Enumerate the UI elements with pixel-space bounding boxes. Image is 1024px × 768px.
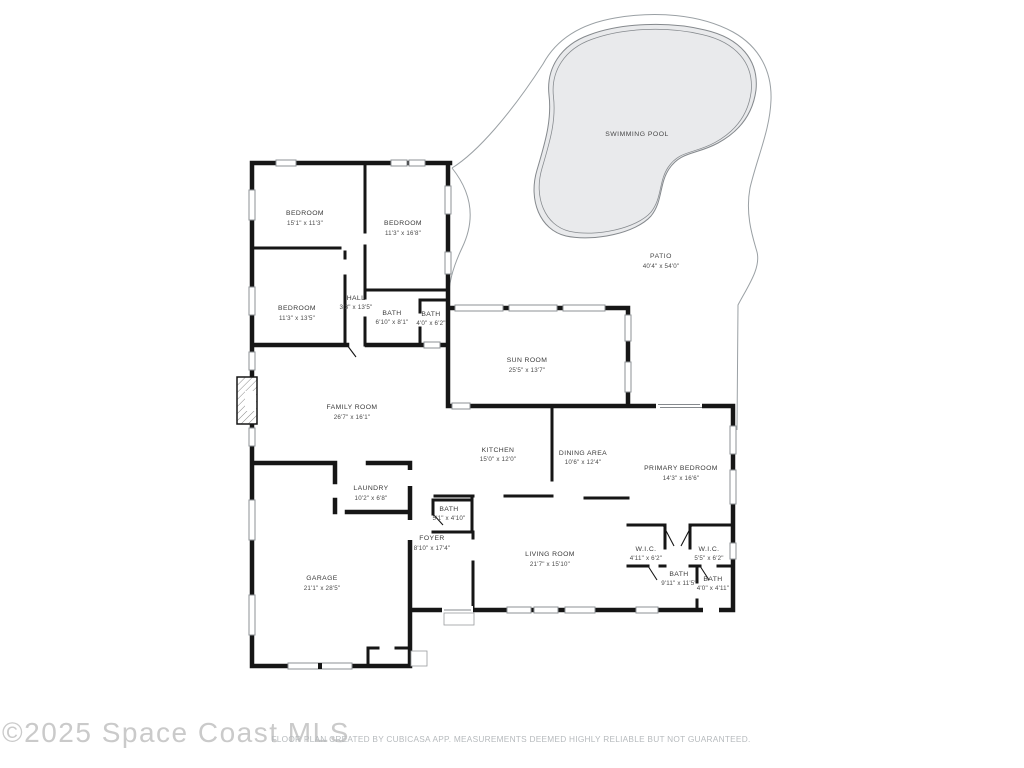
entry-stoop: [411, 613, 474, 666]
svg-text:15'1" x 11'3": 15'1" x 11'3": [287, 220, 323, 227]
svg-text:BEDROOM: BEDROOM: [384, 220, 422, 227]
room-label-sun-room: SUN ROOM 25'5" x 13'7": [507, 357, 548, 374]
room-label-bedroom-2: BEDROOM 11'3" x 16'8": [384, 220, 422, 237]
svg-text:10'6" x 12'4": 10'6" x 12'4": [565, 459, 602, 466]
svg-text:4'11" x 6'2": 4'11" x 6'2": [630, 555, 662, 562]
svg-text:4'0" x 6'2": 4'0" x 6'2": [416, 320, 445, 327]
svg-text:SUN ROOM: SUN ROOM: [507, 357, 548, 364]
svg-text:10'2" x 6'8": 10'2" x 6'8": [355, 495, 388, 502]
room-label-bath-2: BATH 4'0" x 6'2": [416, 311, 445, 327]
svg-text:BEDROOM: BEDROOM: [278, 305, 316, 312]
svg-text:FAMILY ROOM: FAMILY ROOM: [327, 404, 378, 411]
svg-text:DINING AREA: DINING AREA: [559, 450, 607, 457]
room-label-wic-2: W.I.C. 5'5" x 6'2": [694, 546, 723, 562]
room-label-primary-bedroom: PRIMARY BEDROOM 14'3" x 16'6": [644, 465, 718, 482]
svg-text:HALL: HALL: [347, 295, 366, 302]
svg-text:21'1" x 28'5": 21'1" x 28'5": [304, 585, 341, 592]
svg-text:PATIO: PATIO: [650, 253, 672, 260]
svg-text:BATH: BATH: [421, 311, 440, 318]
svg-text:40'4" x 54'0": 40'4" x 54'0": [643, 263, 680, 270]
room-label-bath-4: BATH 9'11" x 11'5": [661, 571, 697, 587]
footer-disclaimer: FLOOR PLAN CREATED BY CUBICASA APP. MEAS…: [271, 734, 750, 744]
room-label-family-room: FAMILY ROOM 26'7" x 16'1": [327, 404, 378, 421]
room-label-bedroom-3: BEDROOM 11'3" x 13'5": [278, 305, 316, 322]
svg-text:W.I.C.: W.I.C.: [636, 546, 657, 553]
room-label-foyer: FOYER 8'10" x 17'4": [414, 535, 451, 552]
svg-text:W.I.C.: W.I.C.: [699, 546, 720, 553]
svg-text:BATH: BATH: [382, 310, 401, 317]
svg-text:8'10" x 17'4": 8'10" x 17'4": [414, 545, 451, 552]
svg-text:26'7" x 16'1": 26'7" x 16'1": [334, 414, 371, 421]
svg-text:5'5" x 6'2": 5'5" x 6'2": [694, 555, 723, 562]
pool-label: SWIMMING POOL: [605, 131, 669, 138]
svg-text:14'3" x 16'6": 14'3" x 16'6": [663, 475, 700, 482]
floor-plan-canvas: SWIMMING POOL PATIO 40'4" x 54'0" BEDROO…: [0, 0, 1024, 768]
svg-text:LIVING ROOM: LIVING ROOM: [525, 551, 575, 558]
svg-text:BATH: BATH: [669, 571, 688, 578]
svg-text:11'3" x 13'5": 11'3" x 13'5": [279, 315, 315, 322]
room-label-wic-1: W.I.C. 4'11" x 6'2": [630, 546, 662, 562]
svg-text:21'7" x 15'10": 21'7" x 15'10": [530, 561, 570, 568]
fireplace: [237, 377, 257, 424]
svg-text:LAUNDRY: LAUNDRY: [353, 485, 388, 492]
room-label-bath-5: BATH 4'0" x 4'11": [697, 576, 729, 592]
svg-text:FOYER: FOYER: [419, 535, 444, 542]
svg-text:GARAGE: GARAGE: [306, 575, 338, 582]
svg-text:11'3" x 16'8": 11'3" x 16'8": [385, 230, 421, 237]
patio-label: PATIO 40'4" x 54'0": [643, 253, 680, 270]
windows: [249, 160, 736, 669]
svg-text:9'11" x 11'5": 9'11" x 11'5": [661, 580, 697, 587]
svg-text:4'0" x 4'11": 4'0" x 4'11": [697, 585, 729, 592]
room-label-bath-1: BATH 6'10" x 8'1": [376, 310, 409, 326]
room-label-living-room: LIVING ROOM 21'7" x 15'10": [525, 551, 575, 568]
room-label-laundry: LAUNDRY 10'2" x 6'8": [353, 485, 388, 502]
room-label-bedroom-1: BEDROOM 15'1" x 11'3": [286, 210, 324, 227]
svg-text:KITCHEN: KITCHEN: [482, 447, 515, 454]
svg-text:BATH: BATH: [439, 506, 458, 513]
svg-text:5'1" x 4'10": 5'1" x 4'10": [433, 515, 466, 522]
svg-text:15'0" x 12'0": 15'0" x 12'0": [480, 456, 517, 463]
floor-plan-page: SWIMMING POOL PATIO 40'4" x 54'0" BEDROO…: [0, 0, 1024, 768]
svg-text:3'3" x 13'5": 3'3" x 13'5": [340, 304, 373, 311]
svg-text:BATH: BATH: [703, 576, 722, 583]
room-label-dining-area: DINING AREA 10'6" x 12'4": [559, 450, 607, 466]
room-label-bath-3: BATH 5'1" x 4'10": [433, 506, 466, 522]
svg-text:BEDROOM: BEDROOM: [286, 210, 324, 217]
svg-text:6'10" x 8'1": 6'10" x 8'1": [376, 319, 409, 326]
svg-text:25'5" x 13'7": 25'5" x 13'7": [509, 367, 546, 374]
room-label-kitchen: KITCHEN 15'0" x 12'0": [480, 447, 517, 463]
svg-text:PRIMARY BEDROOM: PRIMARY BEDROOM: [644, 465, 718, 472]
room-label-garage: GARAGE 21'1" x 28'5": [304, 575, 341, 592]
